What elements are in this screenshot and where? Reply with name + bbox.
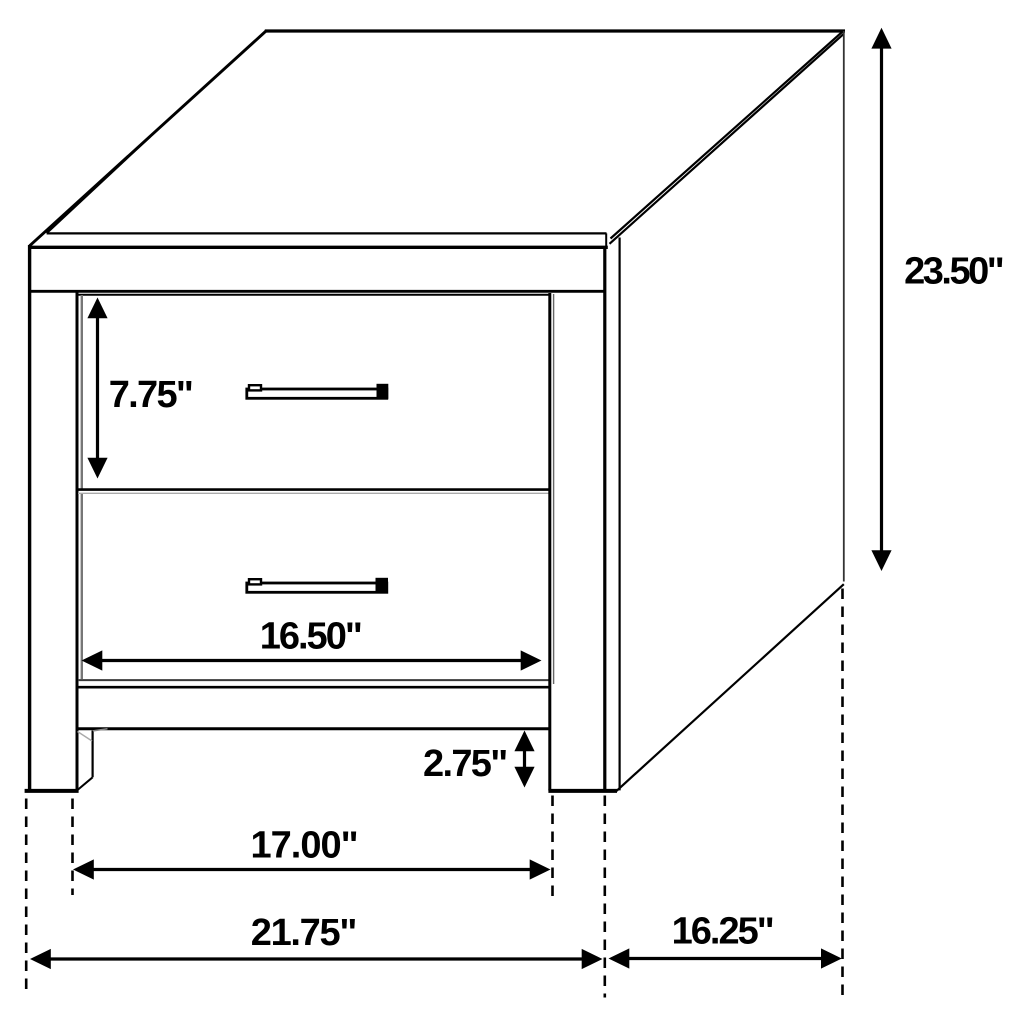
svg-text:17.00": 17.00" [251,825,358,867]
svg-text:16.50": 16.50" [260,616,361,658]
svg-text:21.75": 21.75" [251,912,356,954]
svg-text:7.75": 7.75" [109,374,192,416]
svg-text:23.50": 23.50" [904,251,1003,293]
svg-text:16.25": 16.25" [672,911,773,953]
svg-text:2.75": 2.75" [423,743,506,785]
